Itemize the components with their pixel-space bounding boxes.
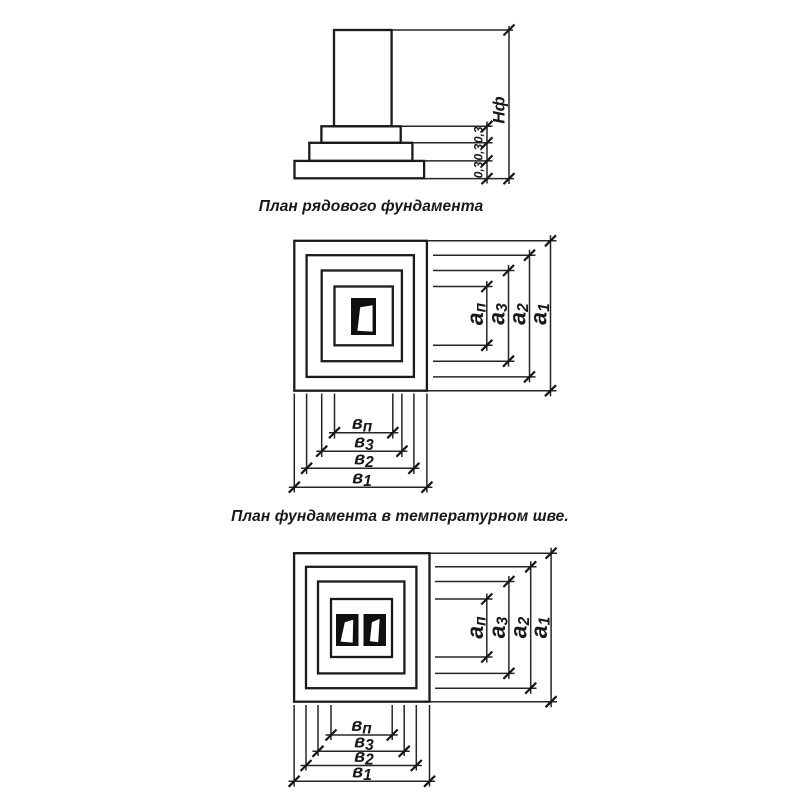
- svg-text:План фундамента в температурно: План фундамента в температурном шве.: [231, 508, 569, 525]
- svg-text:План рядового фундамента: План рядового фундамента: [259, 198, 484, 215]
- svg-text:0,3: 0,3: [472, 161, 486, 178]
- svg-text:Нф: Нф: [490, 96, 509, 123]
- svg-text:0,3: 0,3: [472, 144, 486, 161]
- svg-text:0,3: 0,3: [472, 126, 486, 143]
